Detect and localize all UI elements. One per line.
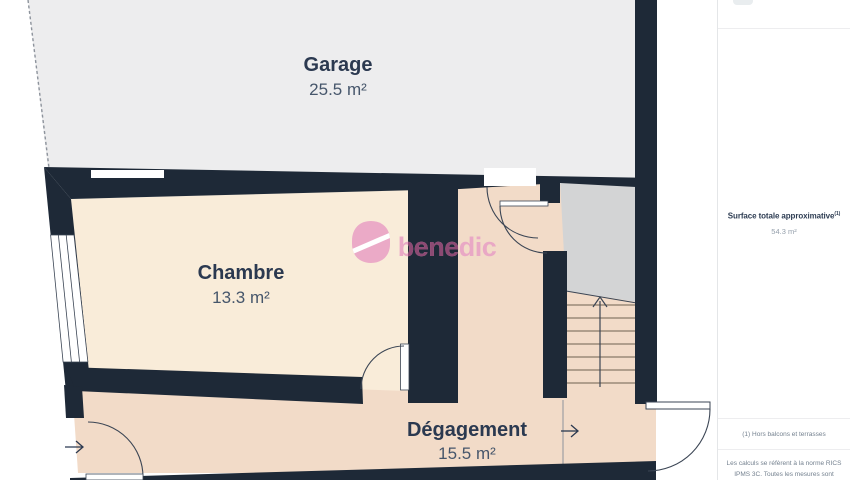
footnote-norm: Les calculs se réfèrent à la norme RICS … bbox=[718, 450, 850, 480]
stair-landing-floor bbox=[560, 180, 637, 302]
garage-wall-opening bbox=[91, 170, 164, 178]
degagement-area: 15.5 m² bbox=[438, 444, 496, 463]
garage-label: Garage bbox=[304, 54, 373, 76]
wall-stair-stub bbox=[540, 180, 560, 203]
floorplan-page: benedic benedic Garage 25.5 m² Chambre 1… bbox=[0, 0, 850, 480]
total-surface-section: Surface totale approximative(1) 54.3 m² bbox=[718, 29, 850, 419]
info-sidebar: Surface totale approximative(1) 54.3 m² … bbox=[717, 0, 850, 480]
garage-area: 25.5 m² bbox=[309, 80, 367, 99]
sidebar-logo-remnant bbox=[733, 0, 753, 5]
floor-plan-drawing: benedic benedic Garage 25.5 m² Chambre 1… bbox=[0, 0, 717, 480]
total-surface-label: Surface totale approximative(1) bbox=[728, 211, 840, 221]
wall-chambre-right bbox=[408, 189, 458, 403]
garage-door-threshold bbox=[484, 168, 536, 186]
footnote-balconies: (1) Hors balcons et terrasses bbox=[718, 419, 850, 450]
chambre-area: 13.3 m² bbox=[212, 288, 270, 307]
total-surface-value: 54.3 m² bbox=[771, 227, 796, 236]
chambre-label: Chambre bbox=[198, 262, 285, 284]
wall-right bbox=[635, 0, 657, 404]
footnote-reference: (1) bbox=[834, 211, 840, 217]
footnote-norm-line-2: IPMS 3C. Toutes les mesures sont bbox=[718, 469, 850, 480]
floor-plan-canvas: benedic benedic Garage 25.5 m² Chambre 1… bbox=[0, 0, 717, 480]
footnote-norm-line-1: Les calculs se réfèrent à la norme RICS bbox=[718, 458, 850, 469]
sidebar-header bbox=[718, 0, 850, 29]
degagement-label: Dégagement bbox=[407, 419, 527, 441]
wall-left-lower bbox=[64, 385, 84, 418]
total-surface-label-text: Surface totale approximative bbox=[728, 211, 835, 220]
wall-stair-left bbox=[543, 251, 567, 398]
